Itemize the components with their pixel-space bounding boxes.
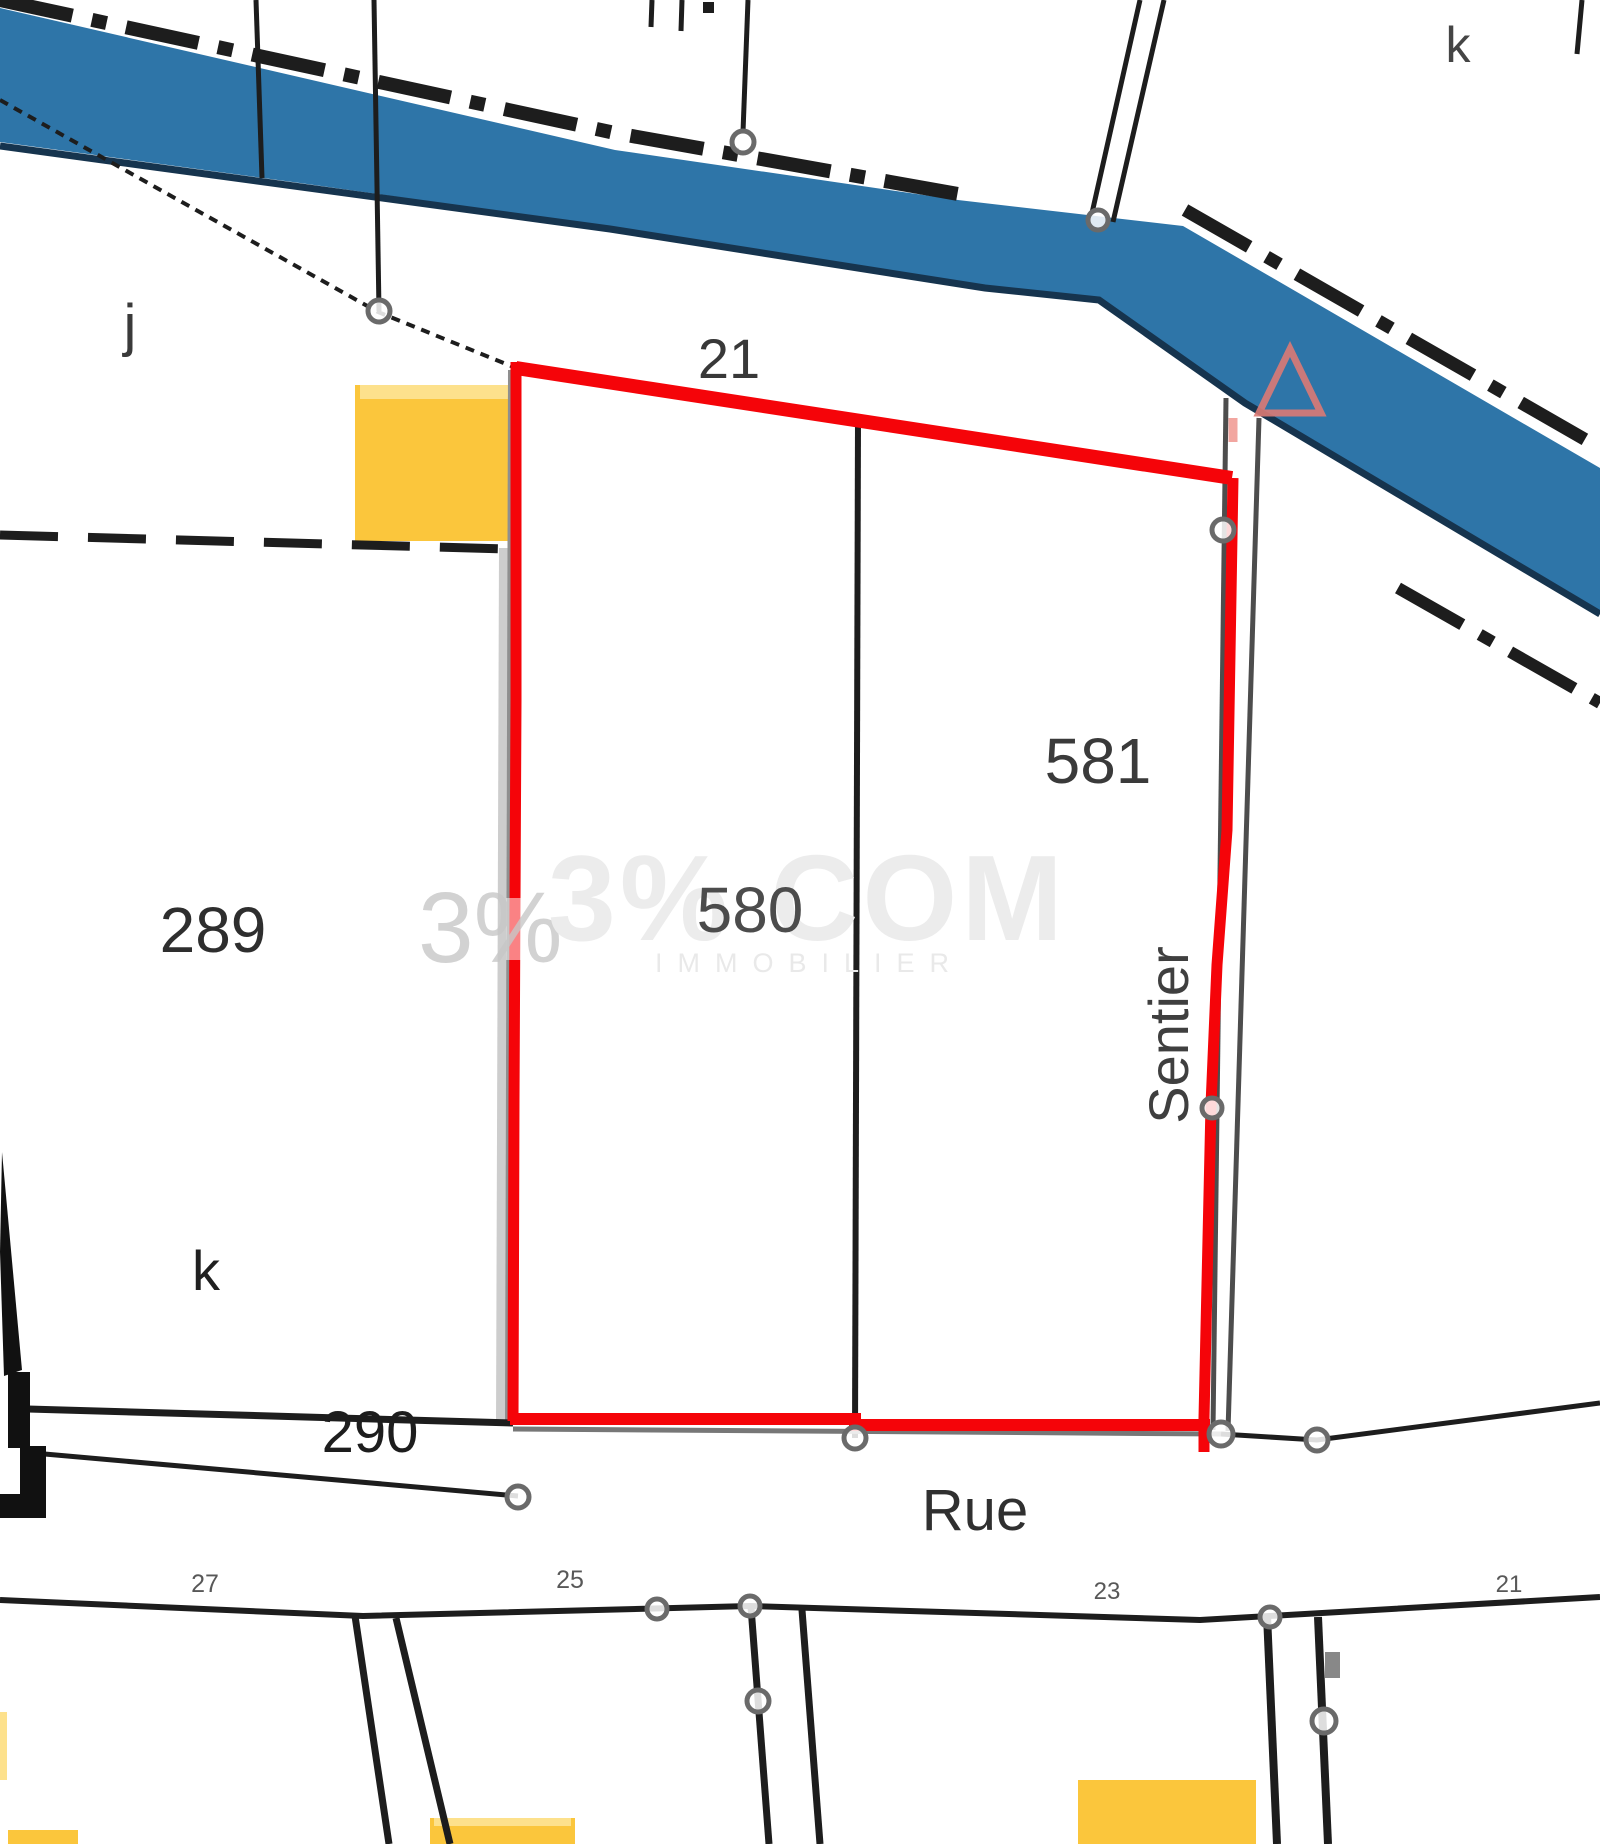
watermark-name: 3% COM (548, 830, 1067, 966)
parcel-label-581: 581 (1045, 725, 1152, 797)
building-left-corner (8, 1830, 78, 1844)
section-label-k-bottom: k (192, 1239, 221, 1302)
house-number-21: 21 (1496, 1571, 1523, 1598)
south-line-marker (1325, 1652, 1340, 1678)
map-svg: 3% 3% COM IMMOBILIER j 21 k 289 580 581 … (0, 0, 1600, 1844)
section-label-k-top: k (1446, 17, 1472, 73)
boundary-top-tick-1 (651, 0, 652, 27)
parcel-label-289: 289 (160, 894, 267, 966)
building-bottom-right (1078, 1780, 1256, 1844)
street-label-rue: Rue (922, 1478, 1028, 1543)
house-number-25: 25 (556, 1566, 584, 1594)
boundary-top-dot (703, 2, 714, 13)
house-number-27: 27 (191, 1570, 219, 1598)
parcel-label-580: 580 (697, 874, 804, 946)
cadastral-map-viewport: 3% 3% COM IMMOBILIER j 21 k 289 580 581 … (0, 0, 1600, 1844)
parcel-label-21: 21 (698, 327, 760, 390)
building-left-sliver (0, 1712, 7, 1780)
boundary-top-tick-2 (681, 0, 682, 31)
house-number-23: 23 (1094, 1578, 1121, 1605)
section-label-j: j (122, 293, 137, 358)
building-topleft (355, 385, 515, 541)
street-label-sentier: Sentier (1137, 946, 1200, 1123)
watermark-tagline: IMMOBILIER (655, 948, 964, 978)
watermark-logo: 3% (418, 872, 563, 984)
red-bottom-edge (510, 1419, 1210, 1425)
parcel-label-290: 290 (322, 1400, 419, 1465)
